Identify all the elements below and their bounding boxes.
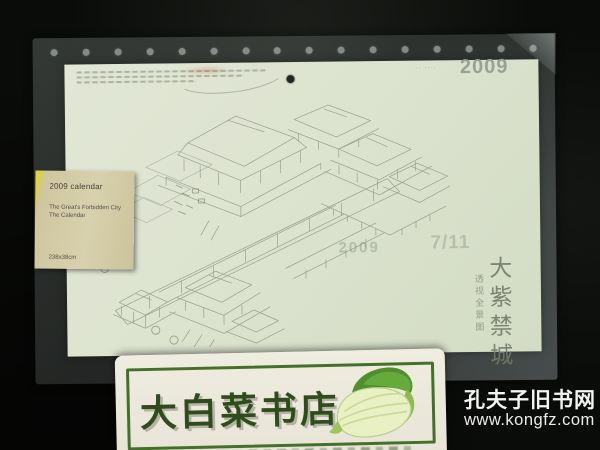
binding-hole <box>274 47 281 54</box>
binding-hole <box>529 44 536 51</box>
product-photo: ·· ···· 2009 <box>0 0 600 450</box>
note-size: 238x38cm <box>49 255 77 261</box>
binding-hole <box>497 45 504 52</box>
binding-hole <box>146 48 153 55</box>
binding-hole <box>83 48 90 55</box>
ghost-date-text: 7/11 <box>430 232 470 254</box>
price-sticky-note: 2009 calendar The Great's Forbidden City… <box>34 170 134 269</box>
binding-hole <box>178 47 185 54</box>
site-watermark: 孔夫子旧书网 www.kongfz.com <box>464 388 596 430</box>
calendar-page: ·· ···· 2009 <box>64 59 541 356</box>
binding-hole <box>402 46 409 53</box>
watermark-site-url: www.kongfz.com <box>464 411 596 430</box>
note-line-2: The Calendar <box>49 212 85 220</box>
binding-hole <box>434 45 441 52</box>
binding-hole <box>114 48 121 55</box>
binding-hole <box>370 46 377 53</box>
year-label: 2009 <box>460 56 509 80</box>
binding-hole <box>51 49 58 56</box>
watermark-site-name: 孔夫子旧书网 <box>464 388 596 411</box>
cabbage-icon <box>323 363 421 447</box>
binding-hole <box>306 46 313 53</box>
calendar-subtitle-calligraphy: 透视全景图 <box>472 274 486 384</box>
binding-hole <box>210 47 217 54</box>
ghost-year-text: 2009 <box>338 239 380 256</box>
hanging-hole <box>286 75 294 83</box>
binding-hole <box>242 47 249 54</box>
bookstore-card: 大白菜书店 <box>115 348 448 450</box>
year-side-text: ·· ···· <box>416 65 437 71</box>
bookstore-name: 大白菜书店 <box>139 379 340 438</box>
note-title: 2009 calendar <box>49 182 102 192</box>
forbidden-city-drawing <box>87 100 452 348</box>
binding-hole <box>338 46 345 53</box>
binding-hole <box>466 45 473 52</box>
